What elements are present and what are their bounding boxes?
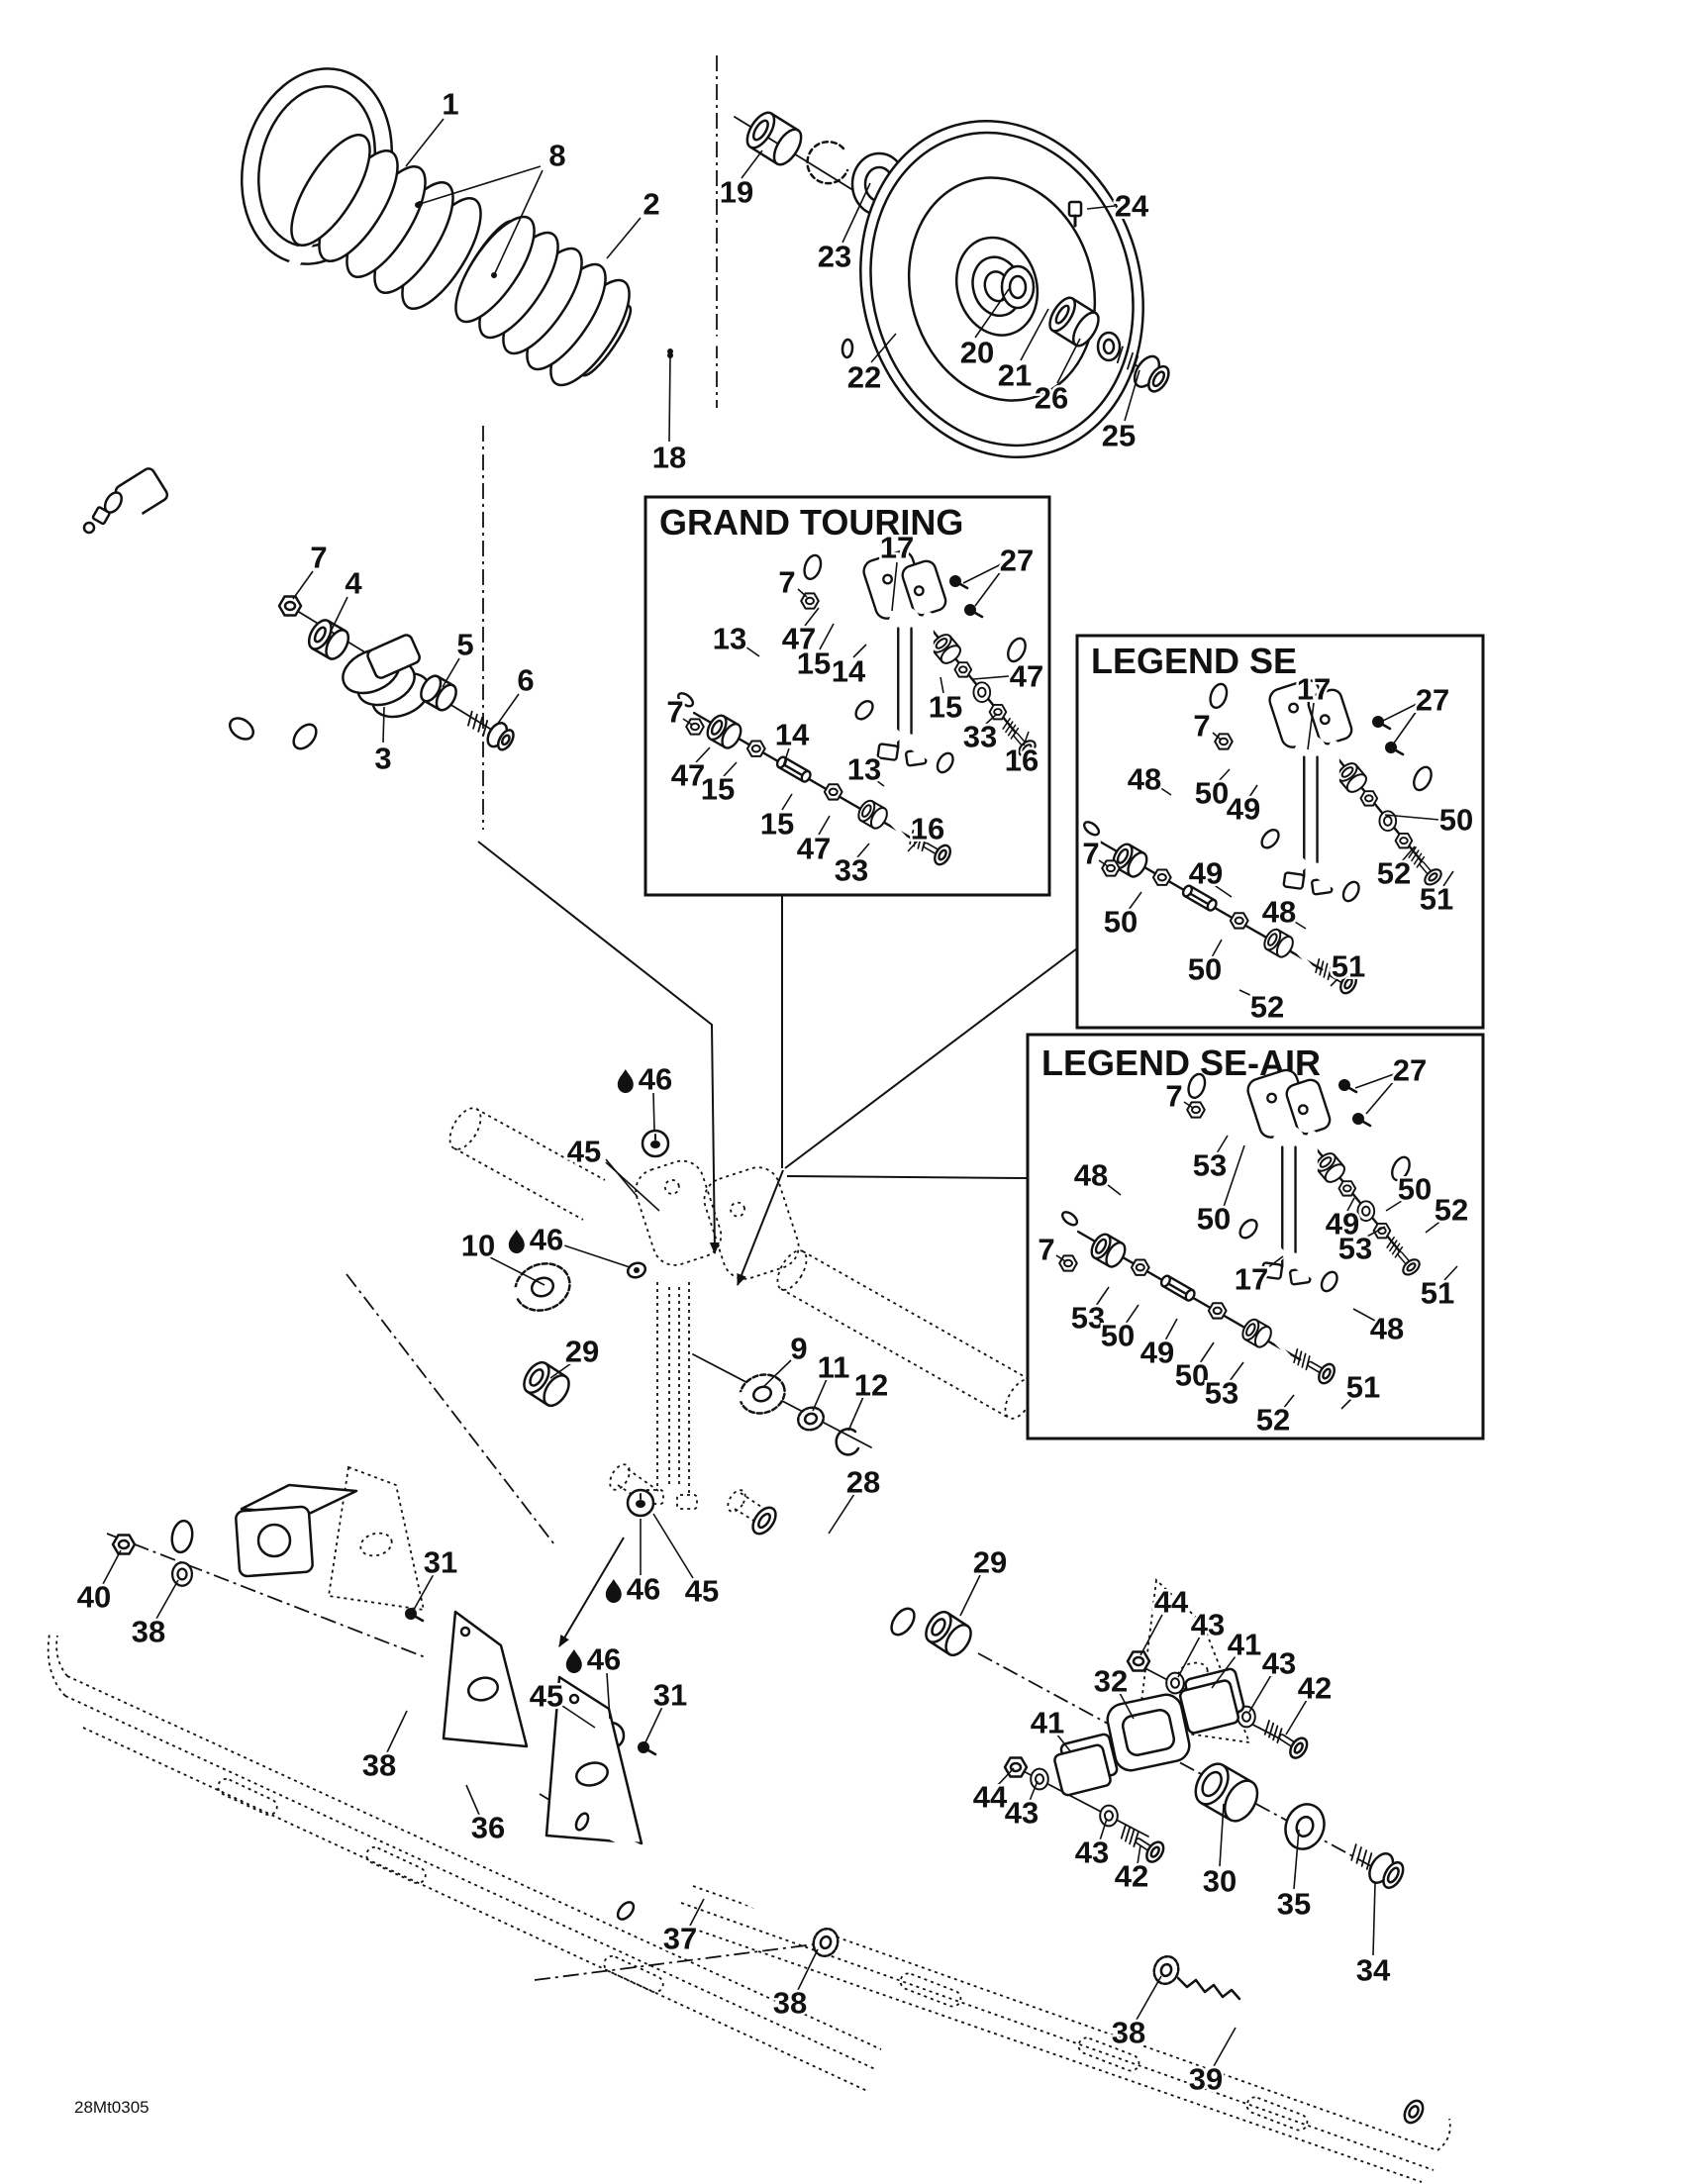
callout-number: 7 [778, 565, 795, 600]
callout-number: 47 [797, 832, 831, 866]
callout-leader-line [387, 1711, 407, 1752]
callout-leader-line [1373, 1883, 1375, 1955]
callout-leader-line [960, 1575, 980, 1616]
callout-number: 46 [587, 1642, 621, 1677]
callout-number: 53 [1205, 1376, 1238, 1411]
callout-number: 15 [760, 807, 794, 842]
callout-leader-line [606, 1159, 638, 1197]
front-shock-spring [84, 52, 495, 533]
callout-46: 46 [509, 1223, 630, 1268]
callout-leader-line [406, 119, 444, 166]
callout-number: 50 [1398, 1172, 1432, 1207]
callout-leader-line [293, 571, 313, 599]
shock-eye-hardware [279, 597, 518, 754]
callout-number: 46 [530, 1223, 563, 1257]
callout-number: 41 [1228, 1628, 1261, 1662]
callout-39: 39 [1189, 2028, 1236, 2097]
callout-number: 49 [1227, 792, 1260, 827]
callout-number: 50 [1104, 905, 1138, 940]
callout-51: 51 [1341, 1370, 1380, 1410]
callout-number: 52 [1256, 1403, 1290, 1438]
callout-38: 38 [773, 1949, 818, 2021]
callout-number: 45 [530, 1679, 563, 1714]
callout-number: 23 [818, 240, 851, 274]
callout-number: 45 [567, 1135, 601, 1169]
leader-end-dot [667, 352, 673, 358]
inset-box-title-grand-touring: GRAND TOURING [659, 502, 963, 543]
callout-42: 42 [1115, 1845, 1148, 1894]
pointer-line [478, 842, 715, 1253]
callout-number: 51 [1420, 882, 1453, 917]
callout-number: 14 [775, 718, 810, 752]
callout-number: 6 [517, 663, 534, 698]
callout-leader-line [497, 694, 519, 725]
callout-number: 48 [1262, 895, 1296, 930]
callout-40: 40 [77, 1550, 121, 1615]
callout-number: 52 [1250, 990, 1284, 1025]
callout-number: 25 [1102, 419, 1136, 453]
callout-38: 38 [362, 1711, 407, 1783]
callout-number: 48 [1074, 1158, 1108, 1193]
rear-axle-hardware [1005, 1652, 1408, 1893]
callout-number: 16 [1005, 744, 1039, 778]
callout-13: 13 [847, 752, 884, 787]
callout-number: 40 [77, 1580, 111, 1615]
callout-number: 1 [442, 87, 458, 122]
phantom-line [346, 1274, 554, 1544]
callout-number: 53 [1193, 1148, 1227, 1183]
callout-number: 7 [1165, 1079, 1182, 1114]
callout-12: 12 [848, 1368, 888, 1432]
callout-number: 34 [1356, 1953, 1391, 1988]
callout-number: 16 [911, 812, 944, 846]
callout-2: 2 [607, 187, 660, 259]
callout-number: 18 [652, 441, 686, 475]
callout-34: 34 [1356, 1883, 1391, 1988]
callout-number: 48 [1128, 762, 1161, 797]
callout-number: 50 [1439, 803, 1473, 838]
callout-29: 29 [960, 1545, 1007, 1617]
callout-number: 45 [685, 1574, 719, 1609]
callout-number: 50 [1188, 952, 1222, 987]
leader-end-dot [491, 272, 497, 278]
callout-1: 1 [406, 87, 459, 167]
callout-45: 45 [653, 1514, 719, 1609]
shock-rod-tube [748, 1504, 976, 1660]
callout-number: 21 [998, 358, 1032, 393]
callout-number: 42 [1115, 1859, 1148, 1894]
callout-number: 7 [666, 695, 683, 730]
callout-number: 4 [345, 566, 362, 601]
callout-43: 43 [1075, 1819, 1109, 1870]
inset-box-title-legend-se: LEGEND SE [1091, 641, 1297, 681]
callout-number: 39 [1189, 2062, 1223, 2097]
callout-number: 5 [456, 628, 473, 662]
callout-number: 43 [1005, 1796, 1039, 1831]
callout-number: 7 [1082, 837, 1099, 871]
callout-number: 51 [1346, 1370, 1380, 1405]
callout-leader-line [653, 1093, 654, 1131]
callout-number: 19 [720, 175, 753, 210]
callout-number: 48 [1370, 1312, 1404, 1346]
callout-number: 27 [1393, 1053, 1427, 1088]
callout-number: 17 [880, 531, 914, 565]
callout-number: 27 [1000, 544, 1034, 578]
pivot-arm-assembly [444, 1103, 1039, 1525]
callout-number: 31 [653, 1678, 687, 1713]
callout-number: 36 [471, 1811, 505, 1845]
callout-leader-line [653, 1514, 693, 1578]
callout-leader-line [669, 355, 670, 442]
callout-leader-line [1178, 1637, 1200, 1677]
callout-number: 13 [847, 752, 881, 787]
callout-38: 38 [132, 1580, 178, 1649]
callout-number: 35 [1277, 1887, 1311, 1922]
callout-number: 2 [643, 187, 659, 222]
callout-37: 37 [663, 1899, 704, 1956]
pointer-line [738, 1170, 783, 1285]
callout-leader-line [564, 1245, 630, 1267]
callout-number: 22 [847, 360, 881, 395]
callout-number: 15 [797, 646, 831, 681]
callout-leader-line [1137, 1976, 1161, 2020]
callout-number: 14 [832, 654, 866, 689]
callout-number: 8 [548, 139, 565, 173]
callout-number: 50 [1197, 1202, 1231, 1237]
callout-number: 49 [1140, 1336, 1174, 1370]
callout-number: 13 [713, 622, 746, 656]
callout-16: 16 [908, 812, 944, 852]
callout-number: 38 [773, 1986, 807, 2021]
callout-19: 19 [720, 150, 762, 210]
callout-number: 20 [960, 336, 994, 370]
callout-51: 51 [1331, 949, 1365, 987]
callout-18: 18 [652, 352, 686, 475]
callout-leader-line [156, 1580, 178, 1619]
callout-number: 38 [132, 1615, 165, 1649]
callout-number: 26 [1035, 381, 1068, 416]
callout-number: 43 [1262, 1646, 1296, 1681]
callout-number: 33 [835, 853, 868, 888]
callout-number: 52 [1435, 1193, 1468, 1228]
oil-drop-icon [566, 1649, 582, 1673]
callout-number: 31 [424, 1545, 457, 1580]
callout-number: 15 [929, 690, 962, 725]
callout-number: 7 [1038, 1233, 1054, 1267]
callout-number: 33 [963, 720, 997, 754]
callout-number: 37 [663, 1922, 697, 1956]
oil-drop-icon [606, 1579, 622, 1603]
callout-6: 6 [497, 663, 535, 726]
callout-38: 38 [1112, 1976, 1161, 2050]
exploded-parts-diagram: GRAND TOURINGLEGEND SELEGEND SE-AIR 1821… [0, 0, 1683, 2184]
callout-number: 24 [1115, 189, 1149, 224]
callout-number: 29 [973, 1545, 1007, 1580]
callout-number: 41 [1031, 1706, 1064, 1740]
callout-number: 3 [374, 742, 391, 776]
callout-number: 7 [310, 541, 327, 575]
callout-leader-line [383, 707, 384, 743]
callout-number: 46 [627, 1572, 660, 1607]
callout-49: 49 [1227, 785, 1260, 827]
callout-number: 38 [362, 1748, 396, 1783]
callout-number: 15 [701, 772, 735, 807]
callout-number: 49 [1189, 856, 1223, 891]
callout-number: 32 [1094, 1664, 1128, 1699]
callout-number: 46 [639, 1062, 672, 1097]
callout-7: 7 [293, 541, 328, 600]
callout-11: 11 [813, 1350, 849, 1412]
callout-43: 43 [1005, 1781, 1039, 1831]
callout-number: 52 [1377, 856, 1411, 891]
callout-number: 38 [1112, 2016, 1145, 2050]
doc-code: 28Mt0305 [74, 2098, 149, 2117]
front-rail-mount [113, 1485, 356, 1586]
callout-number: 43 [1191, 1608, 1225, 1642]
callout-number: 51 [1332, 949, 1365, 984]
callout-number: 11 [818, 1350, 850, 1385]
callout-number: 12 [854, 1368, 888, 1403]
callout-number: 50 [1195, 776, 1229, 811]
callout-number: 47 [1010, 659, 1043, 694]
callout-leader-line [1214, 2028, 1236, 2066]
callout-number: 10 [461, 1229, 495, 1263]
callout-number: 44 [973, 1780, 1008, 1815]
callout-number: 44 [1154, 1585, 1189, 1620]
callout-33: 33 [963, 714, 997, 754]
leader-end-dot [417, 201, 423, 207]
callout-number: 7 [1193, 709, 1210, 744]
callout-41: 41 [1031, 1706, 1071, 1753]
callout-number: 53 [1338, 1232, 1372, 1266]
callout-number: 43 [1075, 1836, 1109, 1870]
callout-number: 42 [1298, 1671, 1332, 1706]
callout-5: 5 [443, 628, 474, 688]
callout-number: 29 [565, 1335, 599, 1369]
callout-31: 31 [645, 1678, 687, 1743]
callout-28: 28 [829, 1465, 880, 1535]
oil-drop-icon [509, 1230, 525, 1253]
oil-drop-icon [618, 1069, 634, 1093]
callout-leader-line [829, 1494, 854, 1534]
callout-number: 27 [1416, 683, 1449, 718]
rail-brackets-shafts [405, 1608, 841, 1959]
callout-leader-line [798, 1949, 818, 1990]
callout-number: 51 [1421, 1276, 1454, 1311]
callout-leader-line [1249, 1675, 1271, 1712]
circlip [808, 142, 847, 183]
callout-leader-line [1140, 1615, 1162, 1655]
callout-number: 17 [1235, 1262, 1268, 1297]
callout-46: 46 [618, 1062, 672, 1132]
callout-number: 30 [1203, 1864, 1237, 1899]
callout-50: 50 [1195, 769, 1230, 811]
callout-leader-line [607, 218, 641, 258]
callout-number: 9 [790, 1332, 807, 1366]
pointer-line [787, 1176, 1028, 1178]
callout-number: 17 [1297, 672, 1331, 707]
callout-46: 46 [606, 1519, 660, 1607]
callout-number: 50 [1101, 1319, 1135, 1353]
callout-number: 28 [846, 1465, 880, 1500]
